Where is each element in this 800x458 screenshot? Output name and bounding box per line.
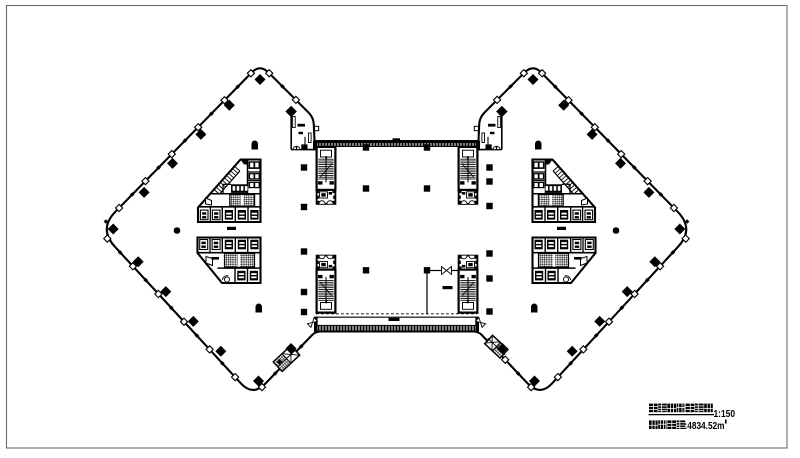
svg-text::4834.52m: :4834.52m [685, 420, 725, 432]
svg-text:1:150: 1:150 [714, 408, 736, 420]
